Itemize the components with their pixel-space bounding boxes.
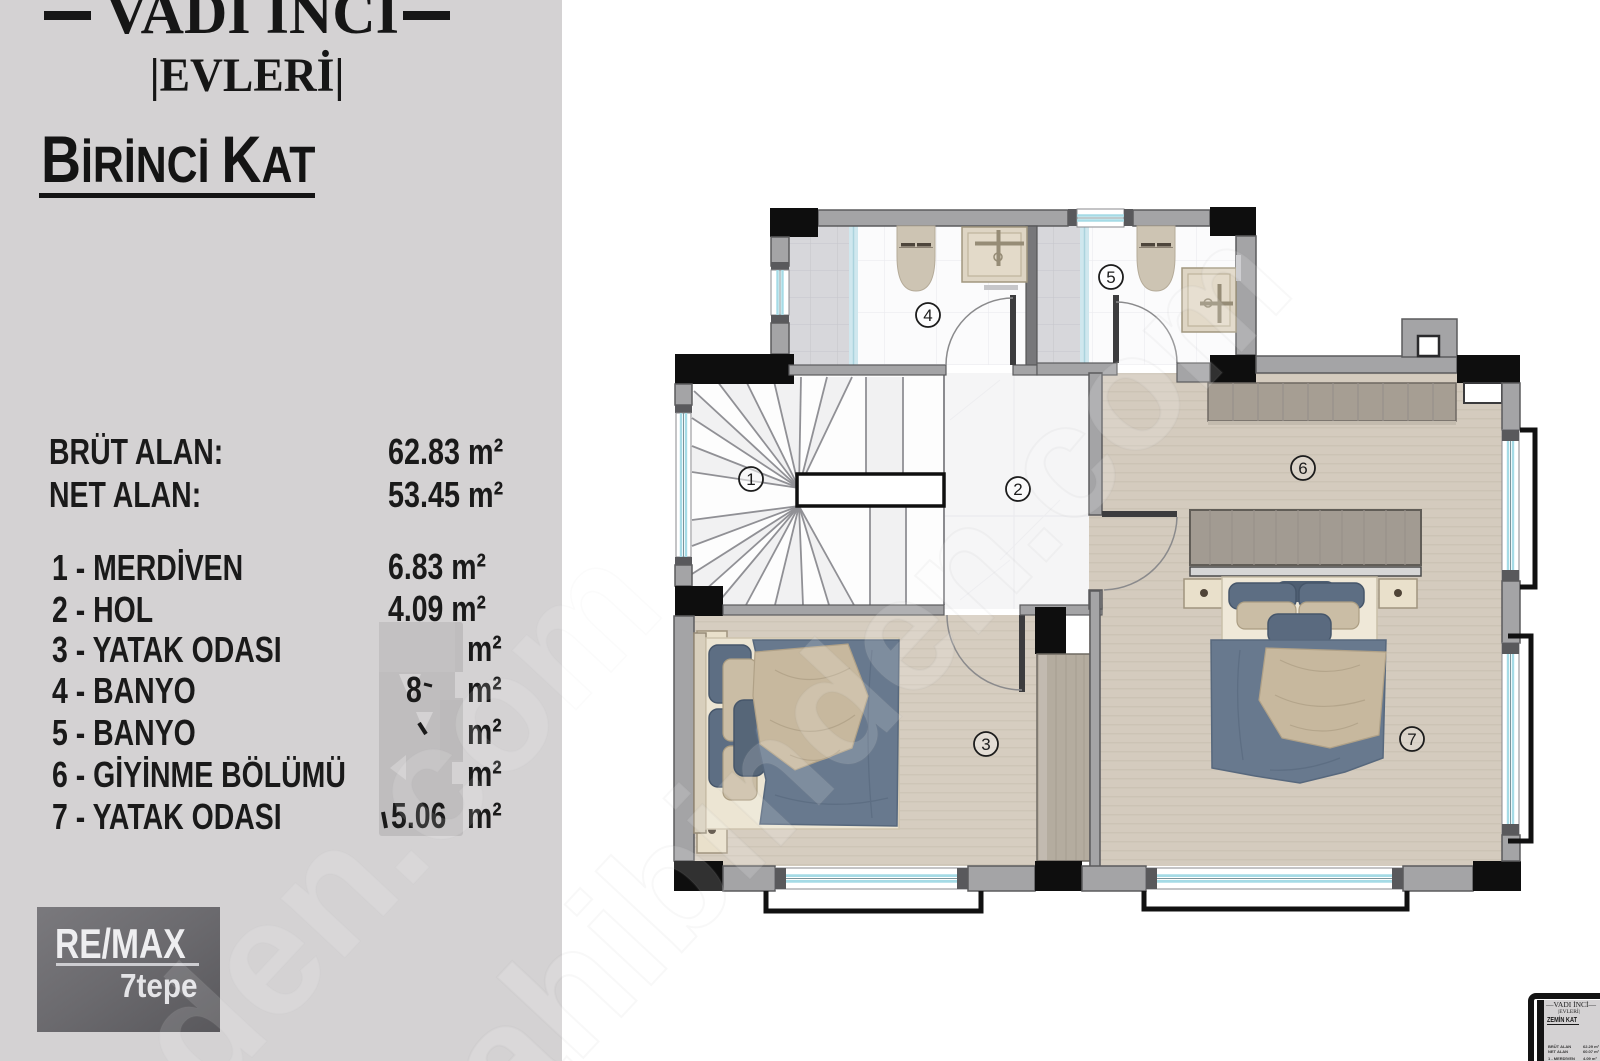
svg-text:1 - MERDİVEN: 1 - MERDİVEN <box>1548 1056 1575 1061</box>
svg-text:BRÜT ALAN:: BRÜT ALAN: <box>49 432 223 472</box>
svg-text:7 - YATAK ODASI: 7 - YATAK ODASI <box>52 797 282 837</box>
svg-text:|EVLERİ|: |EVLERİ| <box>150 49 345 102</box>
svg-text:60.07 m²: 60.07 m² <box>1583 1049 1600 1054</box>
svg-text:53.45 m²: 53.45 m² <box>388 474 503 515</box>
svg-text:2 - HOL: 2 - HOL <box>52 590 153 630</box>
svg-text:5 - BANYO: 5 - BANYO <box>52 713 196 753</box>
svg-text:|EVLERİ|: |EVLERİ| <box>1558 1008 1580 1015</box>
svg-text:ZEMİN KAT: ZEMİN KAT <box>1547 1015 1577 1024</box>
svg-text:NET ALAN: NET ALAN <box>1548 1049 1568 1054</box>
svg-text:4.09 m²: 4.09 m² <box>1583 1056 1597 1061</box>
svg-text:7: 7 <box>1407 730 1416 749</box>
svg-text:1 - MERDİVEN: 1 - MERDİVEN <box>52 548 243 588</box>
svg-text:NET ALAN:: NET ALAN: <box>49 475 201 515</box>
svg-text:1: 1 <box>746 470 755 489</box>
svg-text:3: 3 <box>981 735 990 754</box>
svg-text:4 - BANYO: 4 - BANYO <box>52 671 196 711</box>
svg-text:4: 4 <box>923 306 932 325</box>
svg-text:—VADI İNCİ—: —VADI İNCİ— <box>1545 1000 1597 1009</box>
svg-text:62.83 m²: 62.83 m² <box>388 431 503 472</box>
svg-text:6: 6 <box>1298 459 1307 478</box>
svg-text:6.83 m²: 6.83 m² <box>388 547 486 587</box>
svg-text:VADI İNCİ: VADI İNCİ <box>105 0 399 46</box>
svg-text:3 - YATAK ODASI: 3 - YATAK ODASI <box>52 630 282 670</box>
